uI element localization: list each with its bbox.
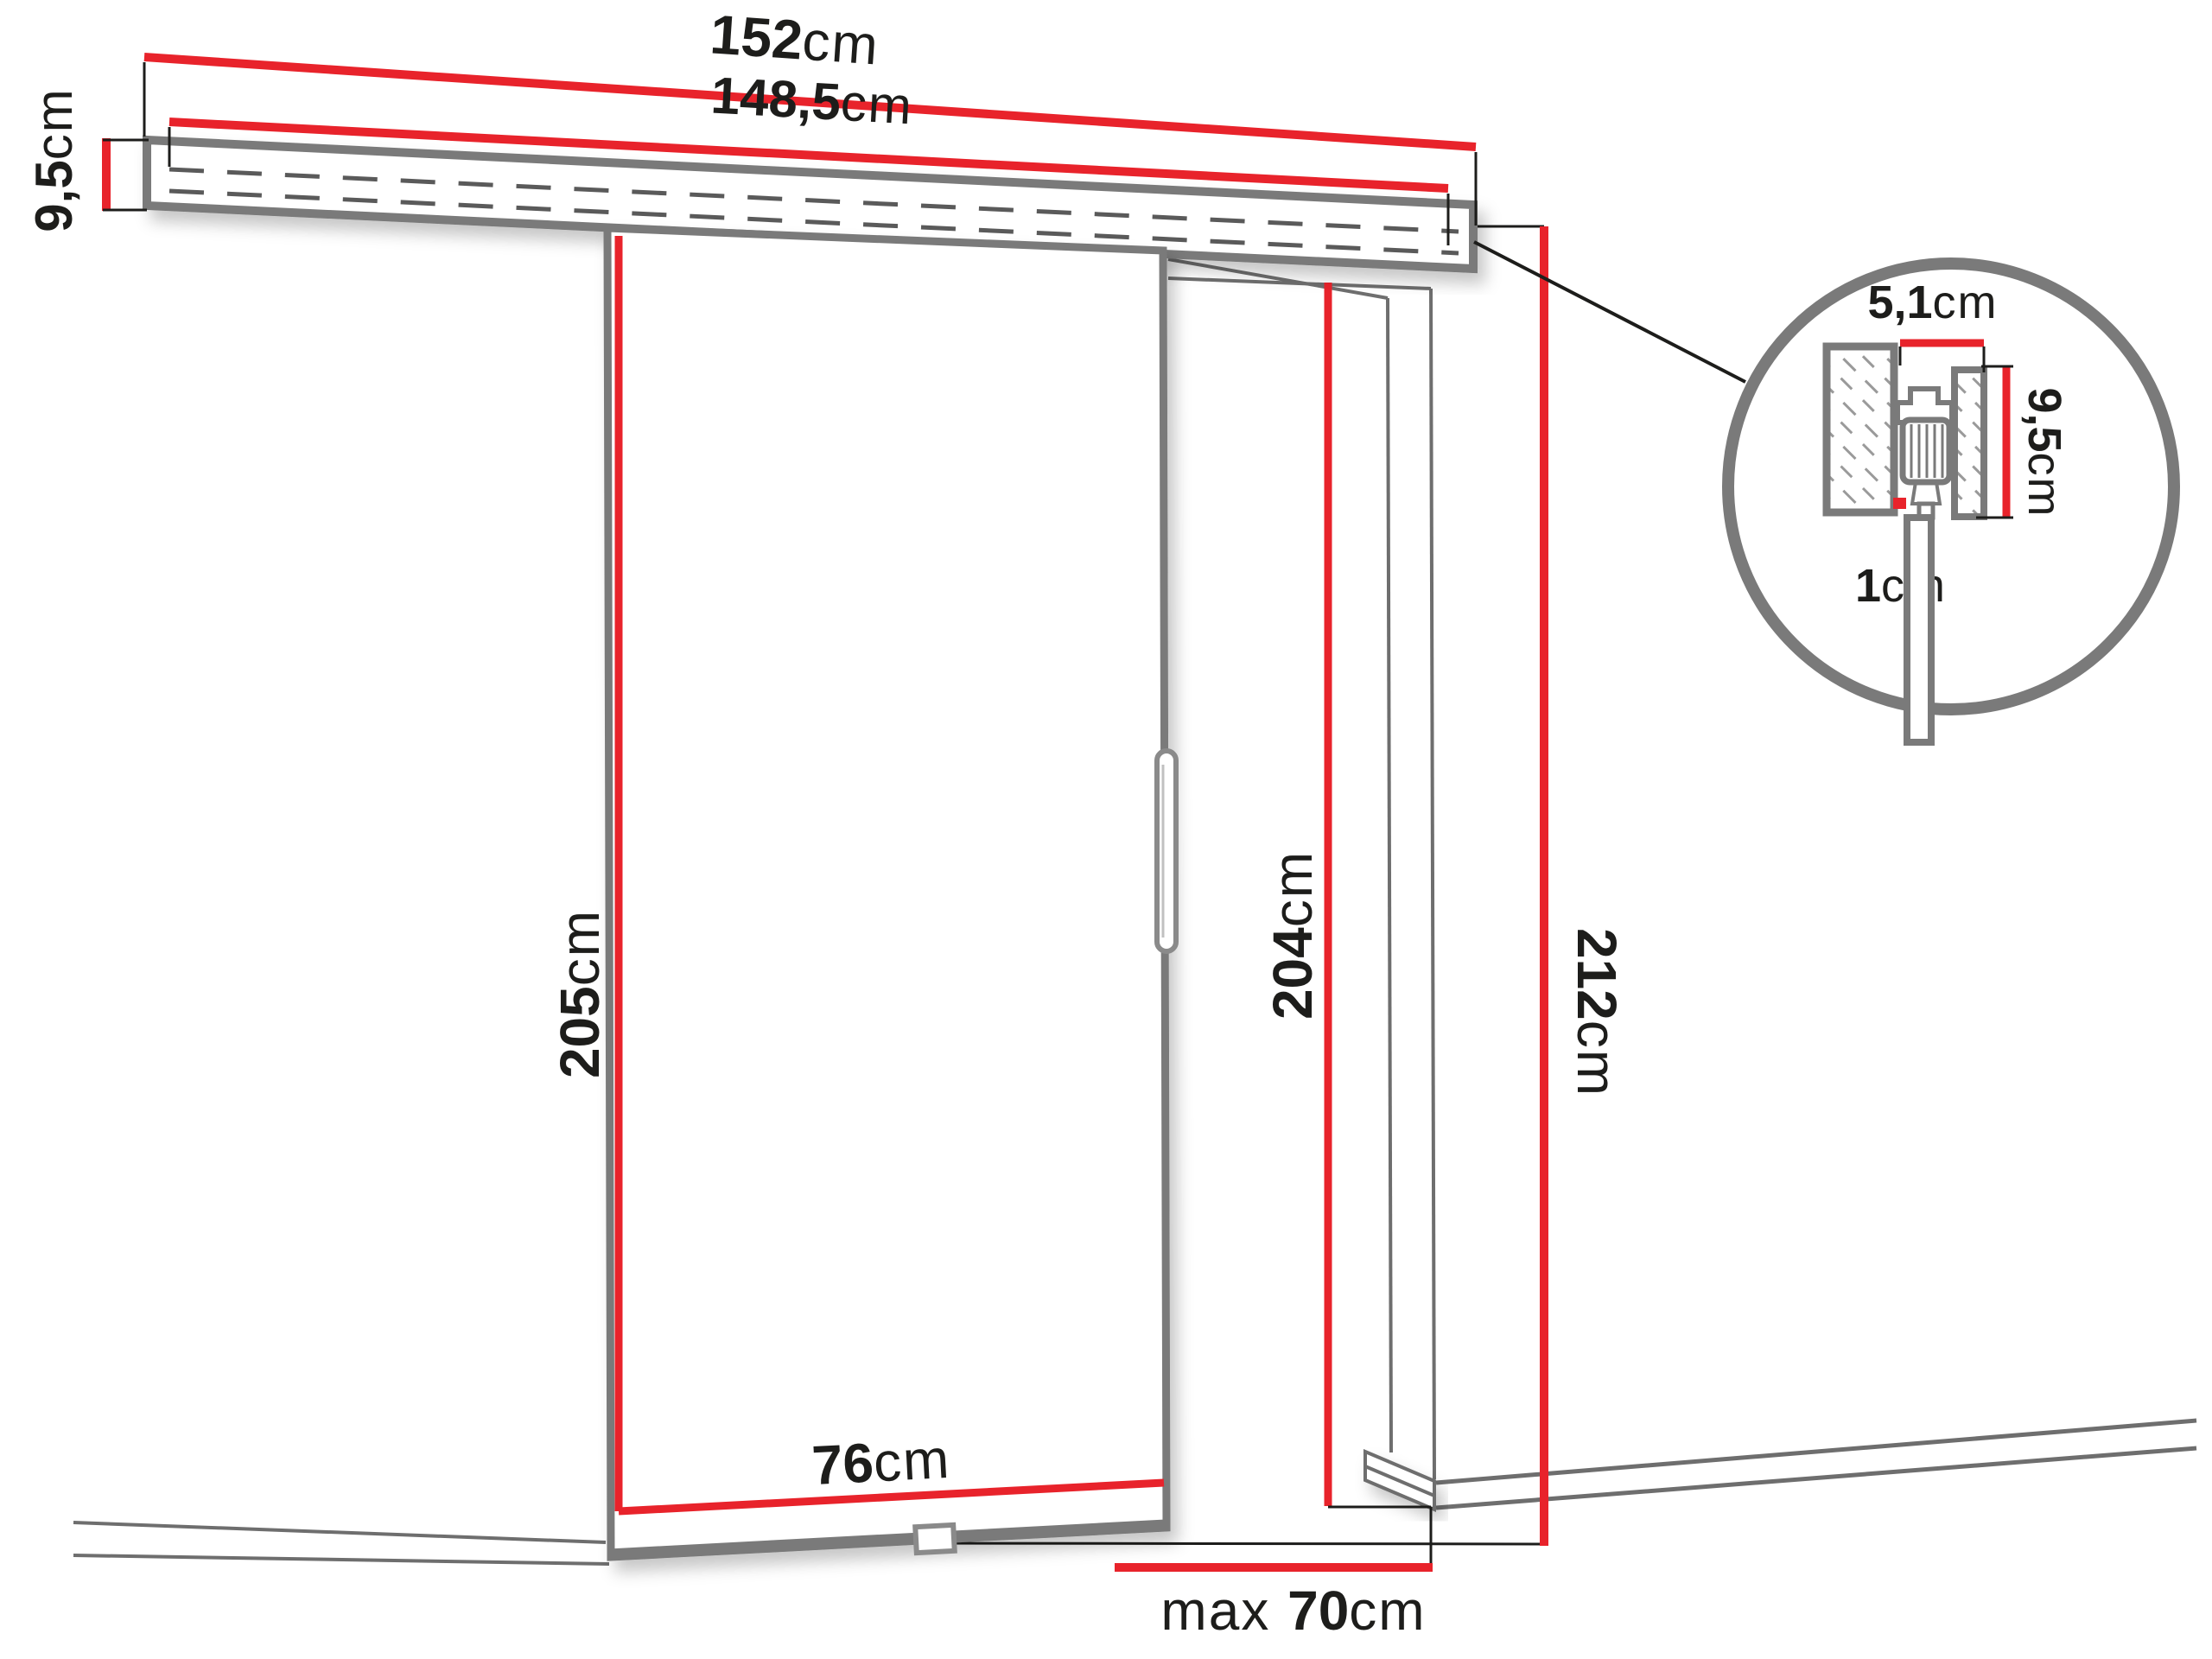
dim-label-detail-height: 9,5cm bbox=[2018, 387, 2070, 518]
dim-label-detail-width: 5,1cm bbox=[1867, 276, 1998, 328]
frame-top-outer-edge bbox=[1168, 278, 1431, 289]
wall-section-left bbox=[1827, 346, 1894, 512]
dim-extension-opening bbox=[1328, 1507, 1431, 1571]
wall-section-right bbox=[1955, 370, 1984, 517]
detail-circle: 1cm 5,1cm 9,5cm bbox=[1728, 264, 2174, 742]
door-handle bbox=[1157, 751, 1176, 951]
frame-plinth bbox=[1365, 1452, 1434, 1510]
sliding-door-diagram: 1cm 5,1cm 9,5cm 152cm 148,5cm 9,5cm 205c… bbox=[0, 0, 2212, 1659]
door-section-bar bbox=[1907, 518, 1931, 742]
skirting-right bbox=[1436, 1421, 2196, 1508]
gap-marker-red bbox=[1893, 498, 1906, 509]
dim-label-rail-total: 152cm bbox=[709, 3, 882, 76]
dim-label-door-height: 205cm bbox=[549, 909, 611, 1078]
dim-label-door-width: 76cm bbox=[810, 1427, 952, 1497]
sliding-door-panel bbox=[607, 228, 1166, 1557]
dim-label-rail-inner: 148,5cm bbox=[709, 66, 915, 135]
dim-label-total-height: 212cm bbox=[1566, 928, 1628, 1097]
diagram-canvas: 1cm 5,1cm 9,5cm 152cm 148,5cm 9,5cm 205c… bbox=[0, 0, 2212, 1659]
detail-pointer-line bbox=[1474, 242, 1745, 382]
skirting-left bbox=[73, 1522, 609, 1564]
frame-jamb-inner-edge bbox=[1388, 298, 1391, 1452]
dim-label-rail-height: 9,5cm bbox=[25, 87, 83, 232]
dim-label-opening-height: 204cm bbox=[1262, 850, 1324, 1020]
dim-label-opening-width: max 70cm bbox=[1160, 1580, 1426, 1642]
floor-guide bbox=[915, 1525, 955, 1553]
frame-jamb-outer-edge bbox=[1431, 289, 1434, 1479]
